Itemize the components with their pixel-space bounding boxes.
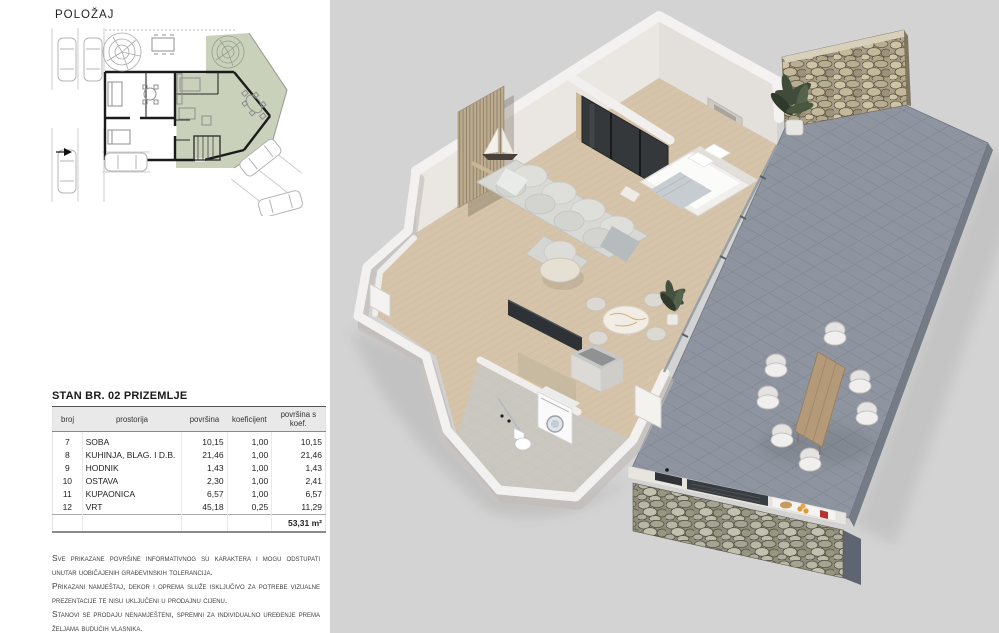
render-panel [330, 0, 999, 633]
col-povrsina-s-koef: površina s koef. [272, 407, 326, 432]
disclaimer-line: Prikazani namještaj, dekor i oprema služ… [52, 580, 320, 608]
table-row: 9HODNIK1,431,001,43 [53, 462, 326, 475]
col-koeficijent: koeficijent [227, 407, 272, 432]
disclaimer-line: Sve prikazane površine informativnog su … [52, 552, 320, 580]
col-broj: broj [53, 407, 83, 432]
location-heading: POLOŽAJ [55, 9, 114, 21]
col-povrsina: površina [182, 407, 227, 432]
brochure-page: POLOŽAJ [0, 0, 999, 633]
total-area-value: 53,31 m² [272, 514, 326, 532]
left-panel: POLOŽAJ [0, 0, 330, 633]
area-table-block: STAN BR. 02 PRIZEMLJE broj prostorija po… [52, 390, 326, 533]
disclaimer-text: Sve prikazane površine informativnog su … [52, 552, 320, 633]
table-row: 7SOBA10,151,0010,15 [53, 432, 326, 449]
table-total-row: 53,31 m² [53, 514, 326, 532]
area-table: broj prostorija površina koeficijent pov… [52, 406, 326, 533]
disclaimer-line: Stanovi se prodaju nenamješteni, spremni… [52, 608, 320, 633]
table-row: 12VRT45,180,2511,29 [53, 501, 326, 515]
table-header-row: broj prostorija površina koeficijent pov… [53, 407, 326, 432]
apartment-title: STAN BR. 02 PRIZEMLJE [52, 390, 326, 402]
table-row: 11KUPAONICA6,571,006,57 [53, 488, 326, 501]
table-row: 10OSTAVA2,301,002,41 [53, 475, 326, 488]
toilet [515, 438, 531, 450]
table-row: 8KUHINJA, BLAG. I D.B.21,461,0021,46 [53, 449, 326, 462]
apartment-3d-render [330, 0, 999, 633]
site-plan [42, 24, 322, 216]
col-prostorija: prostorija [82, 407, 182, 432]
